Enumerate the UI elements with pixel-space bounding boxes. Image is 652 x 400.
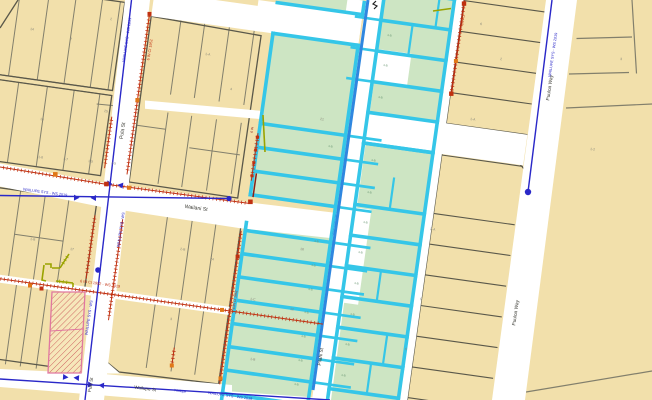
svg-text:4-B: 4-B [294, 382, 299, 387]
svg-text:4-B: 4-B [354, 281, 359, 286]
svg-text:25: 25 [104, 109, 108, 114]
svg-text:18: 18 [300, 247, 304, 252]
svg-text:14: 14 [30, 27, 34, 32]
svg-text:4-B: 4-B [363, 220, 368, 225]
svg-text:4-B: 4-B [311, 263, 316, 268]
svg-text:4-B: 4-B [378, 95, 383, 100]
svg-text:12: 12 [290, 307, 294, 312]
svg-text:4-B: 4-B [304, 310, 309, 315]
svg-text:4-B: 4-B [358, 250, 363, 255]
svg-text:4-B: 4-B [341, 373, 346, 378]
svg-text:4-B: 4-B [387, 33, 392, 38]
svg-text:21: 21 [320, 117, 324, 122]
svg-text:4-B: 4-B [371, 158, 376, 163]
svg-text:4-B: 4-B [345, 342, 350, 347]
svg-text:4-B: 4-B [301, 334, 306, 339]
svg-text:4-B: 4-B [328, 144, 333, 149]
svg-text:1-5: 1-5 [88, 159, 94, 164]
svg-text:1-2: 1-2 [590, 147, 596, 152]
svg-text:4-B: 4-B [314, 239, 319, 244]
svg-text:1-7: 1-7 [63, 157, 69, 162]
svg-text:4-B: 4-B [308, 287, 313, 292]
svg-text:24: 24 [210, 257, 214, 262]
svg-text:1-8: 1-8 [38, 155, 44, 160]
svg-text:4-B: 4-B [383, 63, 388, 68]
svg-text:1-5: 1-5 [111, 161, 117, 166]
svg-text:16: 16 [40, 117, 44, 122]
svg-text:4-B: 4-B [298, 358, 303, 363]
svg-text:4-B: 4-B [367, 190, 372, 195]
svg-text:17: 17 [70, 247, 74, 252]
svg-text:4-B: 4-B [350, 312, 355, 317]
